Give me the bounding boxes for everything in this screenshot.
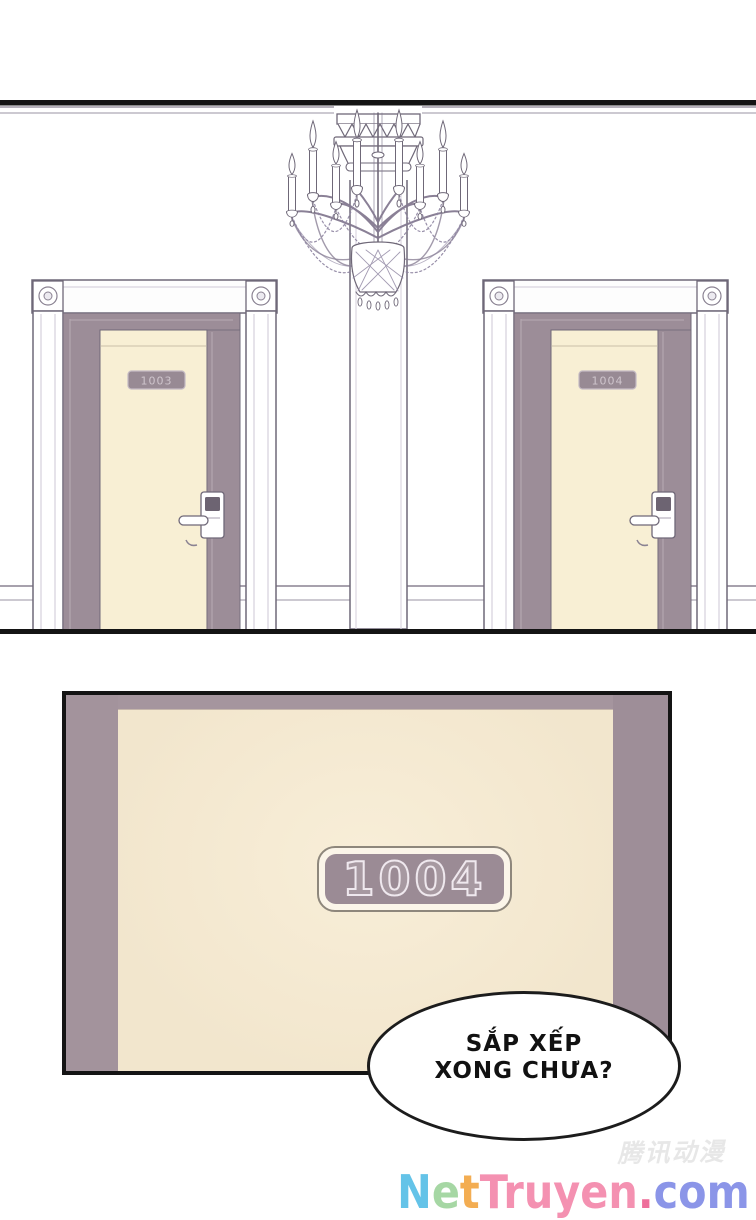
speech-line-2: XONG CHƯA? <box>434 1058 613 1085</box>
logo-letter: e <box>432 1165 460 1219</box>
site-logo: NetTruyen.com <box>397 1169 750 1215</box>
room-number-plate: 1004 <box>317 846 512 912</box>
door-right: 1004 <box>483 280 728 631</box>
speech-bubble: SẮP XẾP XONG CHƯA? <box>367 991 681 1141</box>
room-number: 1004 <box>342 852 486 906</box>
panel-top-border <box>0 100 756 106</box>
logo-letter: r <box>504 1165 524 1219</box>
door-frame-top <box>118 695 613 709</box>
logo-letter: u <box>524 1165 553 1219</box>
panel-hallway: 1003 1004 <box>0 100 756 634</box>
hallway-scene: 1003 1004 <box>0 100 756 634</box>
logo-letter: y <box>554 1165 581 1219</box>
door-left-plate: 1003 <box>141 375 173 388</box>
comic-page: 1003 1004 1004 SẮP XẾP XONG CHƯ <box>0 0 756 1220</box>
logo-letter: e <box>581 1165 609 1219</box>
chandelier <box>287 110 470 310</box>
logo-letter: m <box>707 1165 750 1219</box>
door-right-plate: 1004 <box>592 375 624 388</box>
door-left: 1003 <box>32 280 277 631</box>
logo-letter: . <box>638 1165 654 1219</box>
speech-line-1: SẮP XẾP <box>466 1031 583 1058</box>
logo-letter: c <box>654 1165 679 1219</box>
logo-letter: T <box>480 1165 504 1219</box>
panel-floor-border <box>0 629 756 634</box>
logo-letter: t <box>460 1165 480 1219</box>
door-frame-left <box>66 695 119 1071</box>
logo-letter: N <box>397 1165 432 1219</box>
logo-letter: o <box>678 1165 706 1219</box>
logo-letter: n <box>609 1165 638 1219</box>
